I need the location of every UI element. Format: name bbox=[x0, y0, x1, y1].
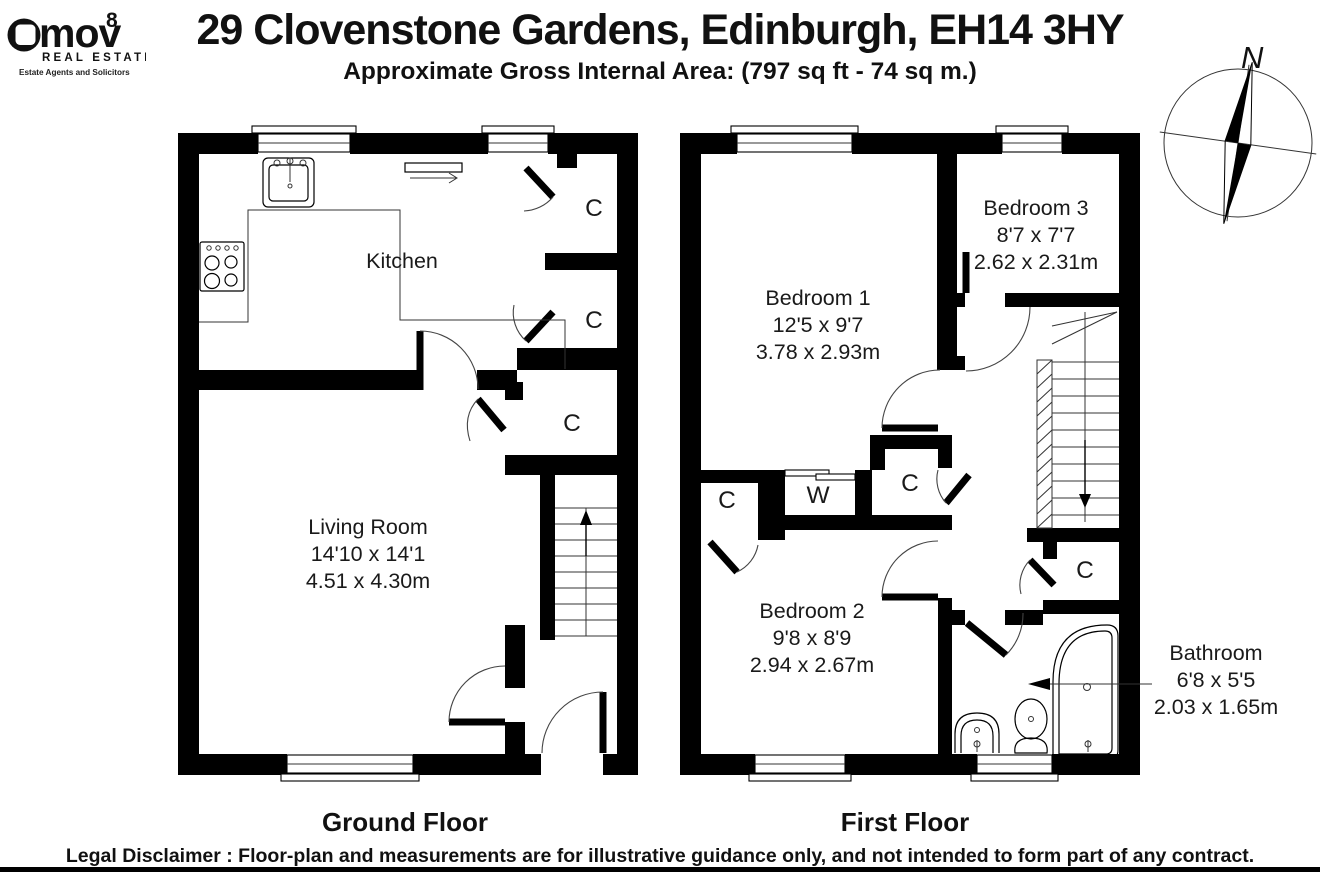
bathroom-name: Bathroom bbox=[1154, 640, 1278, 667]
page-title: 29 Clovenstone Gardens, Edinburgh, EH14 … bbox=[196, 6, 1123, 55]
logo-bubble-icon bbox=[16, 25, 36, 46]
gf-closet-label-2: C bbox=[585, 307, 603, 334]
page-subtitle: Approximate Gross Internal Area: (797 sq… bbox=[343, 58, 977, 86]
ground-floor-plan bbox=[178, 126, 638, 781]
toilet-icon bbox=[1015, 699, 1047, 753]
gf-closet-label-3: C bbox=[563, 410, 581, 437]
ff-wardrobe-label: W bbox=[806, 482, 829, 509]
ff-stairs-icon bbox=[1037, 312, 1119, 528]
kitchen-counter-icon bbox=[199, 210, 565, 369]
logo-tagline: REAL ESTATE bbox=[42, 52, 146, 64]
gf-stairs-icon bbox=[555, 508, 617, 636]
compass-north-label: N bbox=[1241, 40, 1264, 75]
bedroom1-imperial: 12'5 x 9'7 bbox=[756, 312, 880, 339]
bedroom1-label: Bedroom 1 12'5 x 9'7 3.78 x 2.93m bbox=[756, 285, 880, 366]
logo-superscript: 8 bbox=[106, 9, 118, 32]
bedroom2-label: Bedroom 2 9'8 x 8'9 2.94 x 2.67m bbox=[750, 598, 874, 679]
bedroom2-metric: 2.94 x 2.67m bbox=[750, 652, 874, 679]
living-room-imperial: 14'10 x 14'1 bbox=[306, 541, 430, 568]
living-room-label: Living Room 14'10 x 14'1 4.51 x 4.30m bbox=[306, 514, 430, 595]
mov8-logo: mov 8 REAL ESTATE Estate Agents and Soli… bbox=[6, 5, 146, 83]
bedroom2-imperial: 9'8 x 8'9 bbox=[750, 625, 874, 652]
bedroom3-name: Bedroom 3 bbox=[974, 195, 1098, 222]
logo-subtagline: Estate Agents and Solicitors bbox=[19, 68, 130, 77]
bedroom3-imperial: 8'7 x 7'7 bbox=[974, 222, 1098, 249]
kitchen-sink-icon bbox=[263, 158, 314, 207]
bedroom3-label: Bedroom 3 8'7 x 7'7 2.62 x 2.31m bbox=[974, 195, 1098, 276]
bathroom-imperial: 6'8 x 5'5 bbox=[1154, 667, 1278, 694]
kitchen-stove-icon bbox=[200, 242, 244, 291]
kitchen-vent-icon bbox=[405, 163, 462, 183]
first-floor-title: First Floor bbox=[841, 807, 970, 838]
ground-floor-title: Ground Floor bbox=[322, 807, 488, 838]
floorplan-page: mov 8 REAL ESTATE Estate Agents and Soli… bbox=[0, 0, 1320, 872]
bathroom-sink-icon bbox=[955, 713, 999, 753]
ff-closet-label-1: C bbox=[718, 487, 736, 514]
ff-closet-label-2: C bbox=[901, 470, 919, 497]
living-room-metric: 4.51 x 4.30m bbox=[306, 568, 430, 595]
floorplan-drawing bbox=[0, 122, 1320, 794]
bedroom3-metric: 2.62 x 2.31m bbox=[974, 249, 1098, 276]
wardrobe-front-icon bbox=[785, 470, 855, 480]
bathroom-metric: 2.03 x 1.65m bbox=[1154, 694, 1278, 721]
legal-disclaimer: Legal Disclaimer : Floor-plan and measur… bbox=[66, 845, 1254, 868]
bedroom1-name: Bedroom 1 bbox=[756, 285, 880, 312]
gf-closet-label-1: C bbox=[585, 195, 603, 222]
bedroom2-name: Bedroom 2 bbox=[750, 598, 874, 625]
bathtub-icon bbox=[1053, 625, 1118, 760]
living-room-name: Living Room bbox=[306, 514, 430, 541]
ff-closet-label-3: C bbox=[1076, 557, 1094, 584]
kitchen-label: Kitchen bbox=[366, 248, 438, 275]
bedroom1-metric: 3.78 x 2.93m bbox=[756, 339, 880, 366]
bottom-border bbox=[0, 867, 1320, 872]
bathroom-label: Bathroom 6'8 x 5'5 2.03 x 1.65m bbox=[1154, 640, 1278, 721]
